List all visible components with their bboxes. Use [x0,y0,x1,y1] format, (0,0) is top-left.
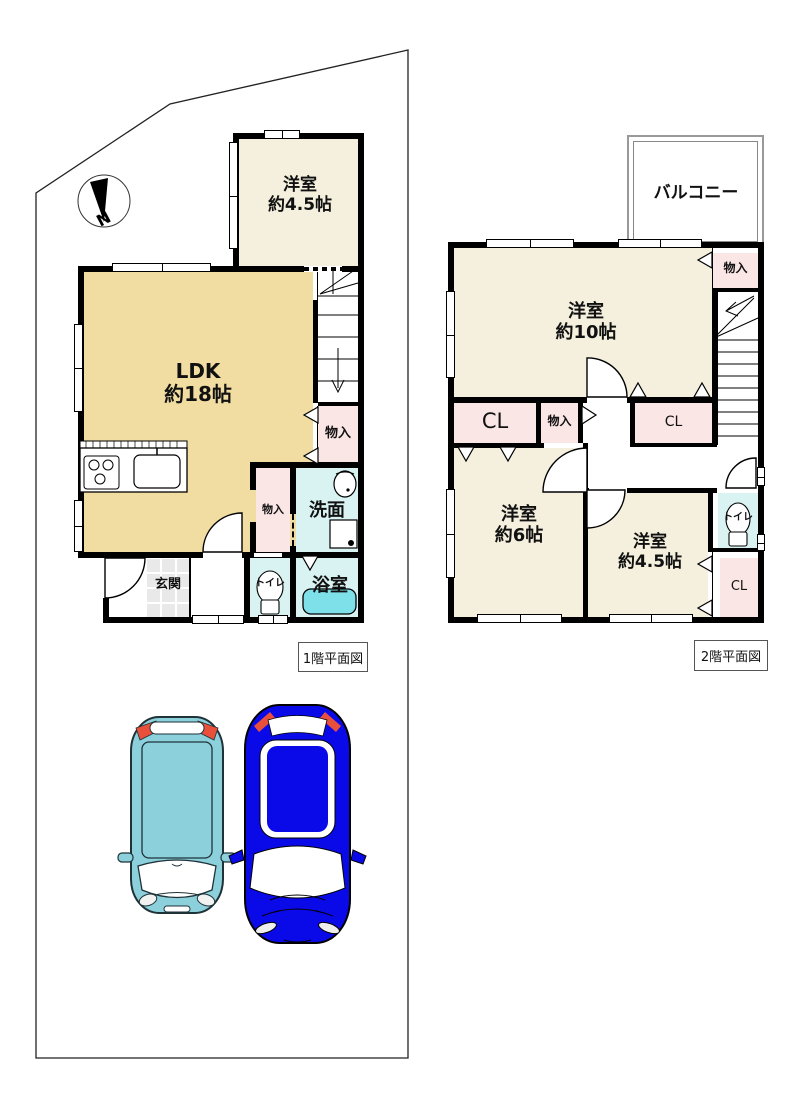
room-size: 約4.5帖 [240,196,360,216]
caption-2f-text: 2階平面図 [701,646,761,665]
room-size: 約18帖 [128,383,268,406]
room-size: 約4.5帖 [592,553,708,573]
toilet-2f-door-arc [726,458,756,488]
label-1f-yoshitsu45: 洋室 約4.5帖 [240,176,360,215]
washing-machine-icon [330,520,357,548]
label-1f-senmen: 洗面 [299,501,355,522]
car-blue [229,705,366,943]
stairs-1f [318,269,358,392]
label-2f-yoshitsu10: 洋室 約10帖 [530,302,642,343]
compass-north-icon: N [78,175,130,230]
toilet-2f-icon [726,503,750,546]
entrance-door-arc [105,558,145,598]
label-2f-toilet: トイレ [716,512,760,524]
stairs-2f [712,296,758,436]
room-size: 約10帖 [530,323,642,344]
yoshitsu6-door-arc [543,448,587,492]
caption-2f: 2階平面図 [694,640,768,671]
label-1f-ldk: LDK 約18帖 [128,360,268,406]
label-2f-cl-right: CL [635,414,712,430]
room-name: 洋室 [530,302,642,323]
room-name: 洋室 [592,533,708,553]
kitchen-counter [80,441,187,492]
yoshitsu10-door-arc [587,358,627,397]
label-1f-toilet: トイレ [248,578,292,590]
floorplan-canvas: N [0,0,800,1110]
room-name: 洋室 [240,176,360,196]
room-name: LDK [128,360,268,383]
stove-icon [84,456,119,489]
label-2f-cl-bottom: CL [720,580,758,595]
label-2f-monoiri-top: 物入 [713,262,758,276]
label-1f-yokushitsu: 浴室 [303,576,357,597]
label-2f-monoiri-mid: 物入 [541,415,578,429]
ldk-door-arc [203,513,242,552]
caption-1f: 1階平面図 [298,642,368,672]
sink-icon [334,471,356,497]
label-2f-cl-left: CL [454,409,536,433]
label-1f-monoiri-stair: 物入 [318,427,358,442]
room-name: 洋室 [462,505,576,526]
label-1f-monoiri-small: 物入 [251,504,295,517]
label-2f-balcony: バルコニー [638,184,754,204]
label-2f-yoshitsu45: 洋室 約4.5帖 [592,533,708,572]
room-size: 約6帖 [462,526,576,547]
car-teal [118,717,236,913]
yoshitsu45-2f-door-arc [587,490,625,528]
caption-1f-text: 1階平面図 [303,648,363,667]
label-2f-yoshitsu6: 洋室 約6帖 [462,505,576,546]
label-1f-genkan: 玄関 [147,578,189,593]
